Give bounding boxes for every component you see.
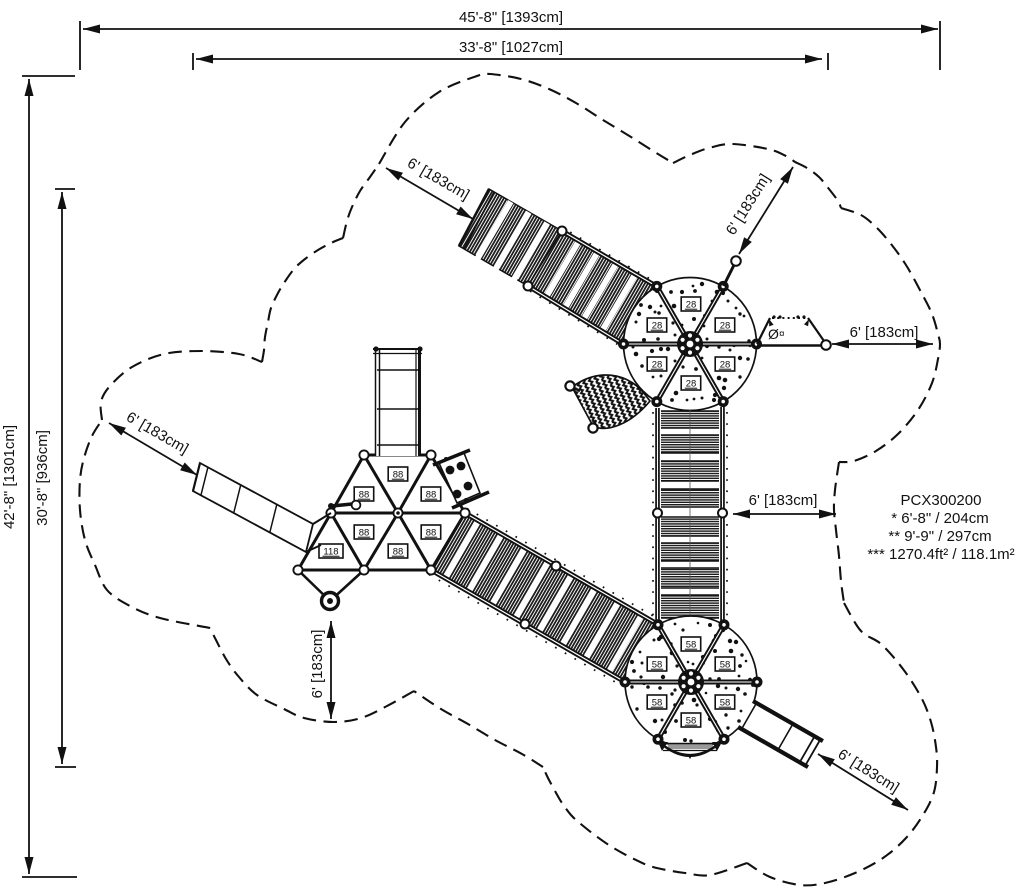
svg-text:¤: ¤ — [779, 329, 785, 340]
svg-text:6' [183cm]: 6' [183cm] — [850, 324, 919, 341]
svg-text:*** 1270.4ft² / 118.1m²: *** 1270.4ft² / 118.1m² — [867, 546, 1014, 563]
svg-text:PCX300200: PCX300200 — [901, 492, 982, 509]
svg-text:* 6'-8" / 204cm: * 6'-8" / 204cm — [891, 510, 988, 527]
svg-text:30'-8" [936cm]: 30'-8" [936cm] — [34, 430, 51, 526]
svg-text:45'-8" [1393cm]: 45'-8" [1393cm] — [459, 9, 563, 26]
svg-text:Ø: Ø — [768, 326, 779, 342]
svg-text:42'-8" [1301cm]: 42'-8" [1301cm] — [1, 425, 18, 529]
svg-text:33'-8" [1027cm]: 33'-8" [1027cm] — [459, 39, 563, 56]
svg-text:6' [183cm]: 6' [183cm] — [309, 630, 326, 699]
svg-text:6' [183cm]: 6' [183cm] — [749, 492, 818, 509]
svg-text:** 9'-9" / 297cm: ** 9'-9" / 297cm — [888, 528, 991, 545]
